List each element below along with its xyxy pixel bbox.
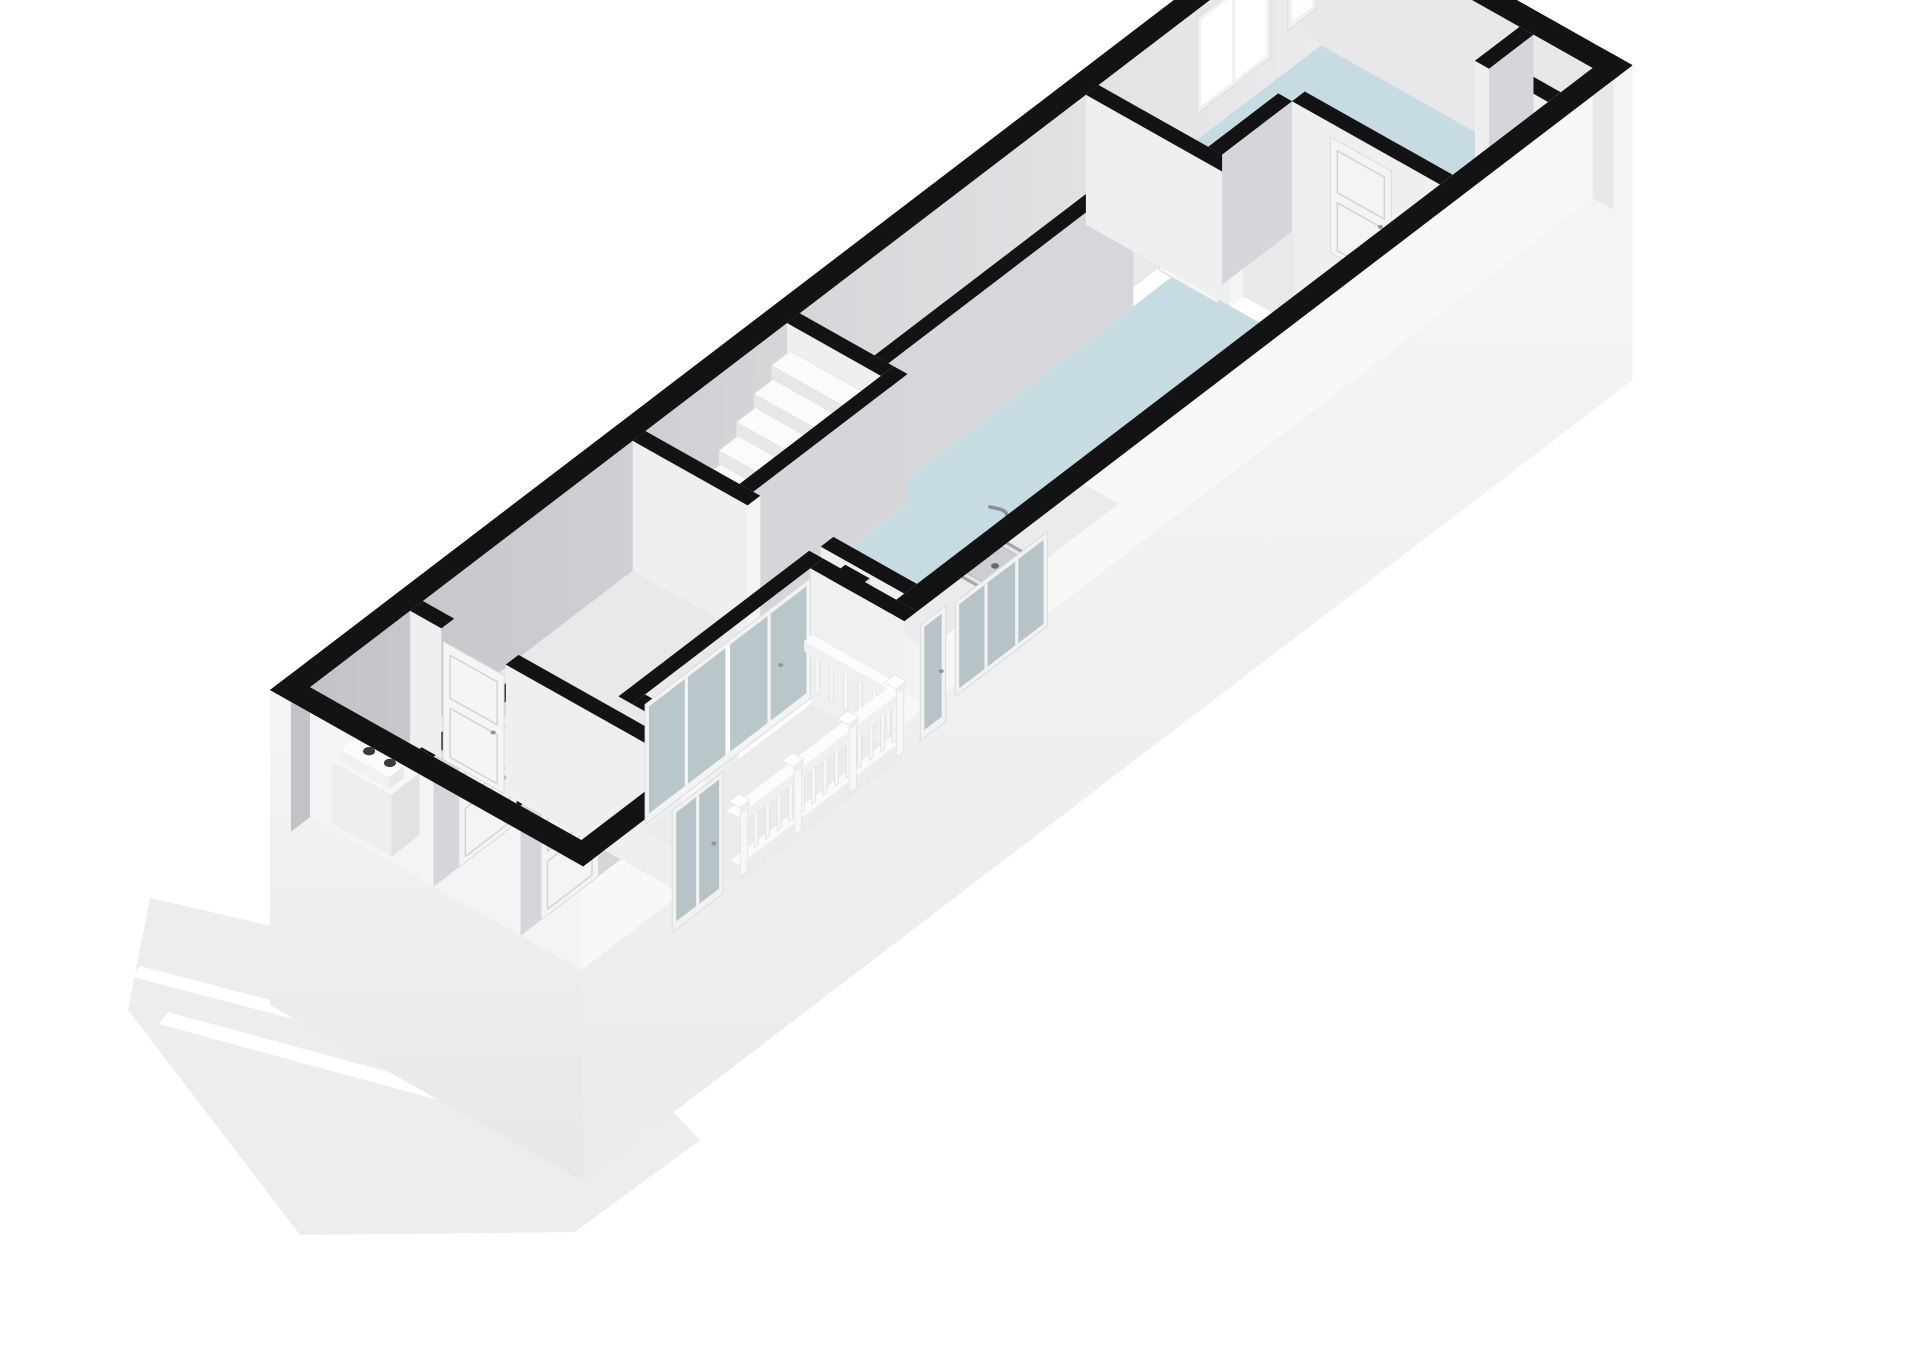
floorplan-3d-render [0, 0, 1920, 1358]
washer-dial-left-shape [363, 747, 375, 755]
entry-partition-low-face [410, 611, 441, 759]
facade-window-ne-mullion-2 [1015, 559, 1018, 645]
washer-dial-left [363, 747, 375, 755]
loggia-glazing-handle-icon [778, 663, 783, 667]
facade-door-sw-mullion-1 [696, 795, 699, 906]
balcony-railing-main-post-1 [794, 766, 801, 835]
bedroom-window-large-mullion-1 [1232, 0, 1235, 82]
loggia-glazing-mullion-3 [768, 614, 771, 723]
balcony-railing-main-post-0 [741, 807, 748, 876]
facade-window-ne-mullion-1 [984, 583, 987, 670]
washer-dial-right [384, 759, 396, 767]
kitchen-sink-drain [991, 563, 999, 569]
loggia-glazing-stile [725, 645, 730, 756]
loggia-glazing-mullion-1 [685, 677, 688, 787]
floorplan-viewport [0, 0, 1920, 1358]
balcony-railing-main-post-3 [896, 688, 903, 757]
facade-door-ne-handle-icon [939, 669, 944, 673]
facade-door-sw-handle-icon [711, 842, 716, 846]
entry-door-handle-icon [491, 730, 496, 734]
facade-door-ne [920, 606, 945, 741]
ne-closet-door-handle-icon [1378, 225, 1383, 229]
ne-end-wall-cap [1614, 65, 1633, 210]
balcony-railing-main-post-2 [849, 724, 856, 794]
washer-dial-right-shape [384, 759, 396, 767]
scene-root [128, 0, 1633, 1235]
